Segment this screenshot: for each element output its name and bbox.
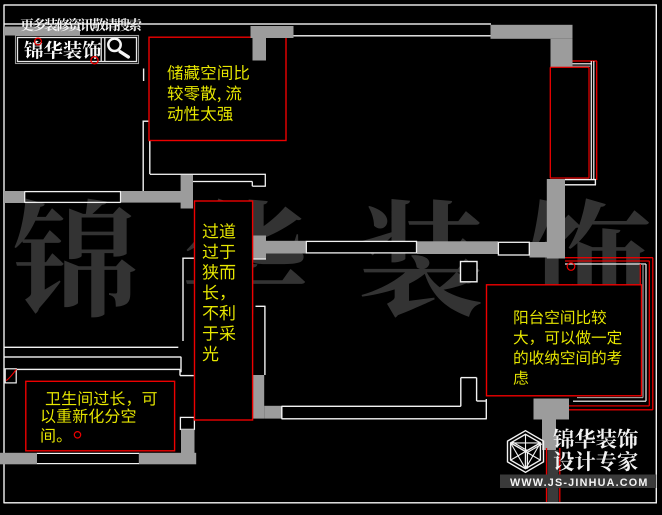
svg-text:WWW.JS-JINHUA.COM: WWW.JS-JINHUA.COM <box>510 477 649 489</box>
